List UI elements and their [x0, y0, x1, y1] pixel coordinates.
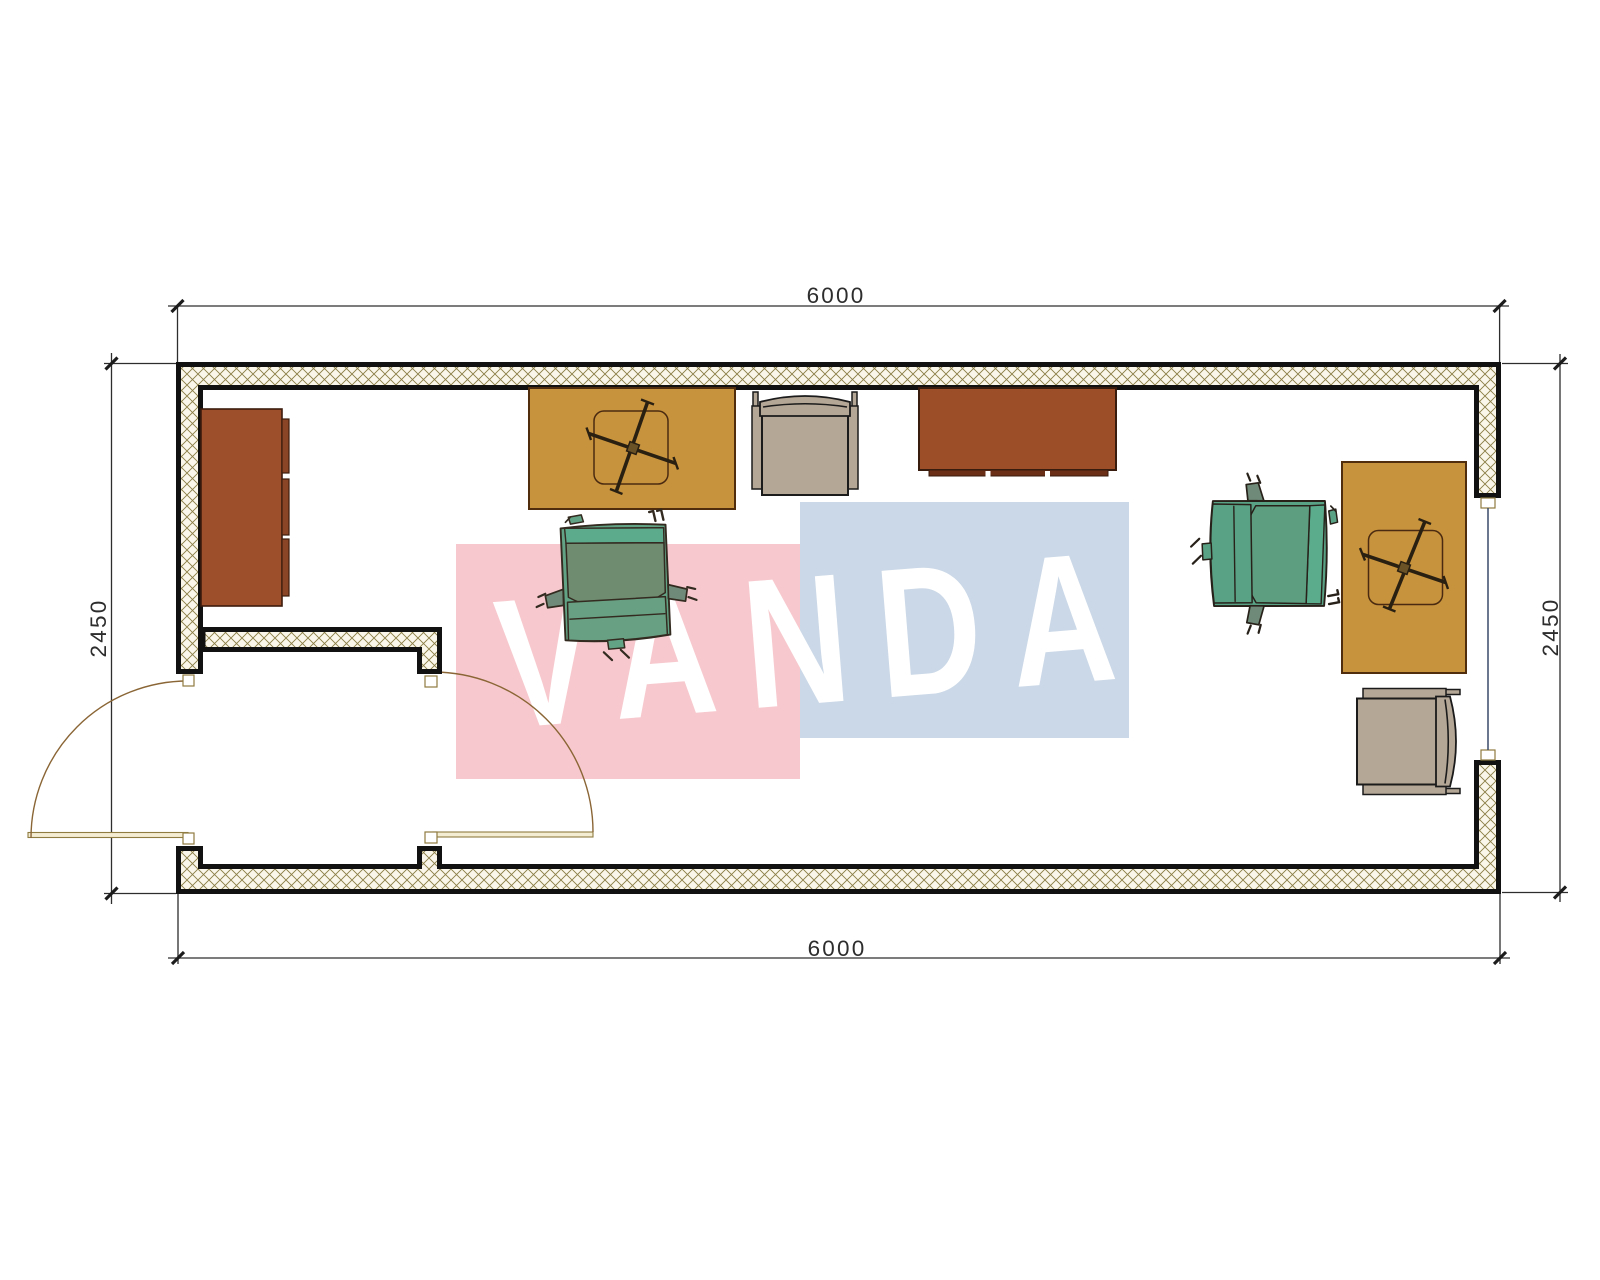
svg-text:2450: 2450: [86, 599, 111, 658]
svg-text:2450: 2450: [1538, 598, 1563, 657]
svg-text:6000: 6000: [807, 283, 866, 308]
svg-text:6000: 6000: [808, 936, 867, 961]
